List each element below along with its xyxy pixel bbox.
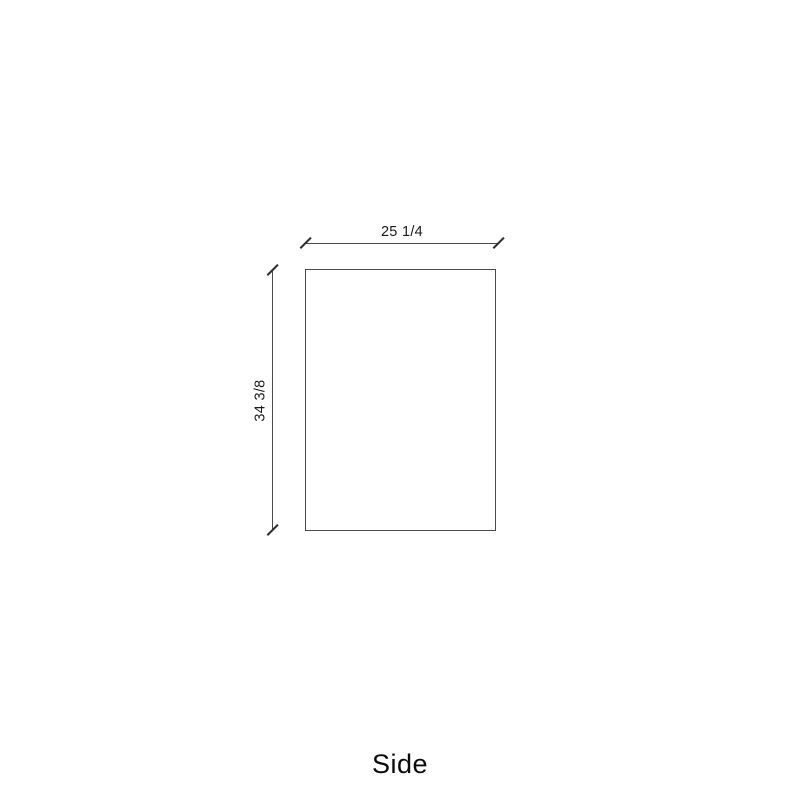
width-dimension-line	[305, 243, 499, 244]
view-title: Side	[0, 749, 800, 780]
width-dimension-label: 25 1/4	[305, 224, 499, 240]
side-panel-outline	[305, 269, 496, 531]
height-dimension-line	[272, 270, 273, 530]
drawing-canvas: 25 1/4 34 3/8 Side	[0, 0, 800, 800]
height-dimension-label: 34 3/8	[253, 271, 270, 531]
